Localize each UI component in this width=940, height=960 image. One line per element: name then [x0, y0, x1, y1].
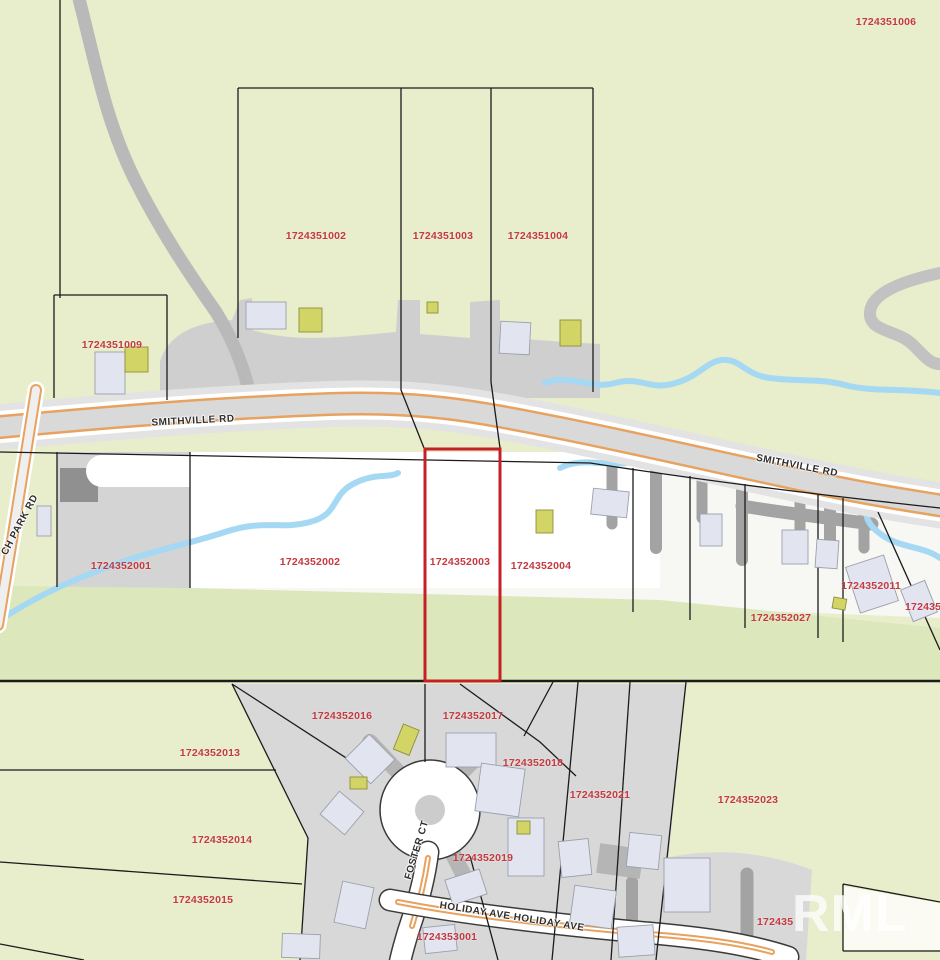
parcel-label-highlighted: 1724352003 [430, 556, 490, 568]
map-graphics [0, 0, 940, 960]
parcel-label: 1724353001 [417, 931, 477, 943]
watermark-logo: RML [792, 888, 908, 940]
parcel-label: 1724352001 [91, 560, 151, 572]
parcel-label: 1724352017 [443, 710, 503, 722]
parcel-label: 1724351004 [508, 230, 568, 242]
parcel-label-clipped: 172435 [905, 601, 940, 613]
parcel-label: 1724352013 [180, 747, 240, 759]
parcel-label: 1724352021 [570, 789, 630, 801]
parcel-label: 1724352023 [718, 794, 778, 806]
parcel-label: 1724352002 [280, 556, 340, 568]
parcel-label: 1724352004 [511, 560, 571, 572]
parcel-label: 1724351006 [856, 16, 916, 28]
parcel-label: 1724351002 [286, 230, 346, 242]
parcel-label: 1724352015 [173, 894, 233, 906]
parcel-label: 1724352011 [841, 580, 901, 592]
parcel-label: 1724351009 [82, 339, 142, 351]
parcel-label: 1724352027 [751, 612, 811, 624]
parcel-label: 1724352016 [312, 710, 372, 722]
parcel-label: 1724352018 [503, 757, 563, 769]
parcel-map-canvas[interactable]: 1724351006 1724351002 1724351003 1724351… [0, 0, 940, 960]
parcel-label-clipped: 172435 [757, 916, 793, 928]
parcel-label: 1724352014 [192, 834, 252, 846]
parcel-label: 1724352019 [453, 852, 513, 864]
parcel-label: 1724351003 [413, 230, 473, 242]
